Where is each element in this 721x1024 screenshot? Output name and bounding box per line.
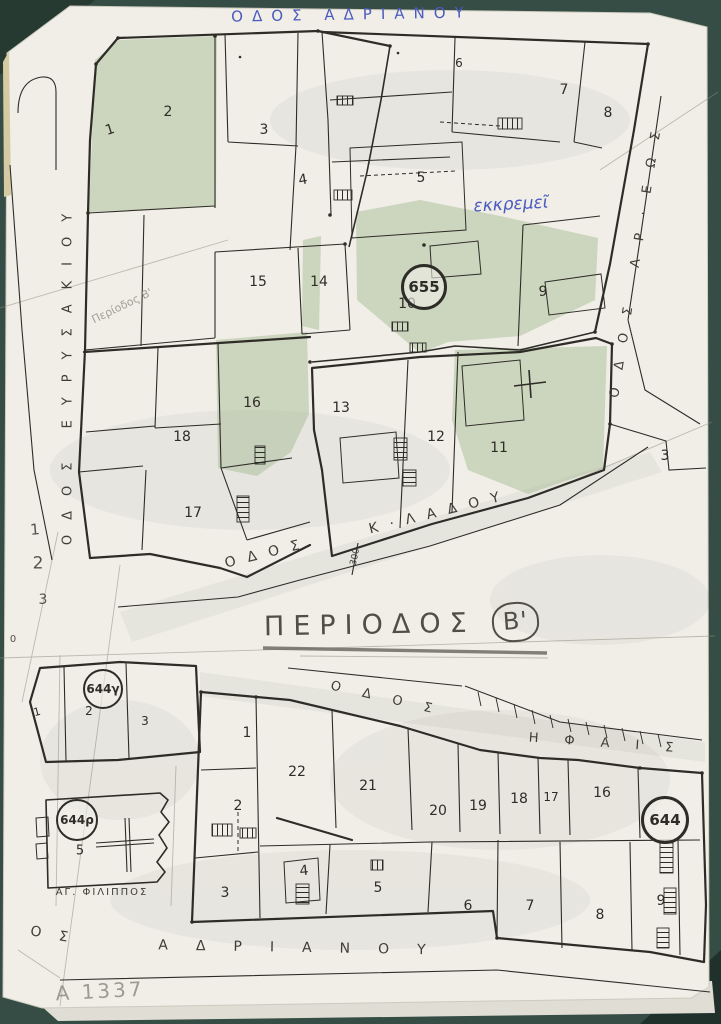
parcel-number: 11	[490, 441, 508, 455]
parcel-number: 6	[455, 57, 463, 69]
parcel-number: 8	[604, 106, 613, 120]
street-label-adrianou-bottom-os: ΟΣ	[29, 924, 86, 947]
parcel-number: 5	[417, 171, 426, 185]
period-badge: Β'	[490, 600, 540, 643]
period-title-text: ΠΕΡΙΟΔΟΣ	[264, 607, 476, 642]
margin-number: 1	[30, 522, 41, 538]
parcel-number: 3	[661, 449, 670, 463]
parcel-number: 15	[249, 275, 267, 289]
margin-number: 2	[33, 556, 44, 573]
street-label-adrianou-top: ΟΔΟΣ ΑΔΡΙΑΝΟΥ	[231, 5, 473, 24]
street-label-evrysakiou: ΟΔΟΣ ΕΥΡΥΣΑΚΙΟΥ	[62, 199, 75, 545]
parcel-number: 1	[104, 122, 117, 138]
parcel-number: 1	[243, 726, 252, 740]
circled-block-number: 644γ	[83, 669, 123, 709]
parcel-number: 16	[593, 786, 611, 800]
street-label-odos-ifaistou: ΟΔΟΣ	[329, 680, 454, 721]
survey-distance-mark: 300	[350, 548, 362, 567]
parcel-number: 14	[310, 275, 328, 289]
parcel-number: 4	[299, 864, 309, 879]
parcel-number: 16	[243, 396, 261, 410]
parcel-number: 9	[657, 894, 666, 908]
margin-number: 3	[39, 593, 48, 607]
street-label-adrianou-bottom: ΑΔΡΙΑΝΟΥ	[158, 938, 454, 957]
parcel-number: 1	[32, 706, 42, 718]
circled-block-number: 655	[401, 264, 447, 310]
parcel-number: 7	[526, 899, 535, 913]
parcel-number: 12	[427, 430, 445, 444]
parcel-number: 8	[596, 908, 605, 922]
parcel-number: 18	[173, 430, 191, 444]
parcel-number: 18	[510, 792, 528, 806]
parcel-number: 2	[234, 799, 243, 813]
parcel-number: 22	[288, 765, 306, 779]
archive-code: Α 1337	[55, 979, 145, 1004]
parcel-number: 5	[76, 845, 84, 858]
parcel-number: 13	[332, 401, 350, 415]
pending-annotation: εκκρεμεῖ	[473, 195, 549, 216]
parcel-number: 4	[297, 172, 308, 187]
parcel-number: 17	[184, 506, 202, 520]
parcel-number: 3	[141, 715, 149, 727]
parcel-number: 2	[85, 705, 93, 717]
street-label-odos-kladou: ΟΔΟΣ	[223, 536, 312, 571]
parcel-number: 19	[469, 799, 487, 813]
circled-block-number: 644	[641, 796, 689, 844]
pencil-annotation: Περίοδος Β'	[90, 287, 154, 326]
parcel-number: 20	[429, 804, 447, 818]
street-label-kladou: Κ·ΛΑΔΟΥ	[368, 488, 513, 537]
scanned-cadastral-map: ΟΔΟΣ ΑΔΡΙΑΝΟΥΟΔΟΣ ΕΥΡΥΣΑΚΙΟΥΟΔΟΣ ΑΡ·ΕΩΣΟ…	[0, 0, 721, 1024]
street-label-ifaistou: ΗΦΑΙΣ	[528, 732, 699, 757]
period-title: ΠΕΡΙΟΔΟΣ Β'	[264, 602, 539, 647]
church-label: ΑΓ. ΦΙΛΙΠΠΟΣ	[56, 888, 149, 898]
parcel-number: 3	[260, 123, 269, 137]
parcel-number: 7	[560, 83, 569, 97]
parcel-number: 6	[464, 899, 473, 913]
map-labels-layer: ΟΔΟΣ ΑΔΡΙΑΝΟΥΟΔΟΣ ΕΥΡΥΣΑΚΙΟΥΟΔΟΣ ΑΡ·ΕΩΣΟ…	[0, 0, 721, 1024]
parcel-number: 17	[543, 791, 558, 803]
parcel-number: 3	[221, 886, 230, 900]
circled-block-number: 644ρ	[56, 799, 98, 841]
parcel-number: 9	[539, 285, 548, 299]
parcel-number: 21	[359, 779, 377, 793]
street-label-areos: ΟΔΟΣ ΑΡ·ΕΩΣ	[608, 113, 666, 398]
parcel-number: 5	[374, 881, 383, 895]
margin-number: 0	[10, 635, 16, 645]
parcel-number: 2	[164, 105, 173, 119]
